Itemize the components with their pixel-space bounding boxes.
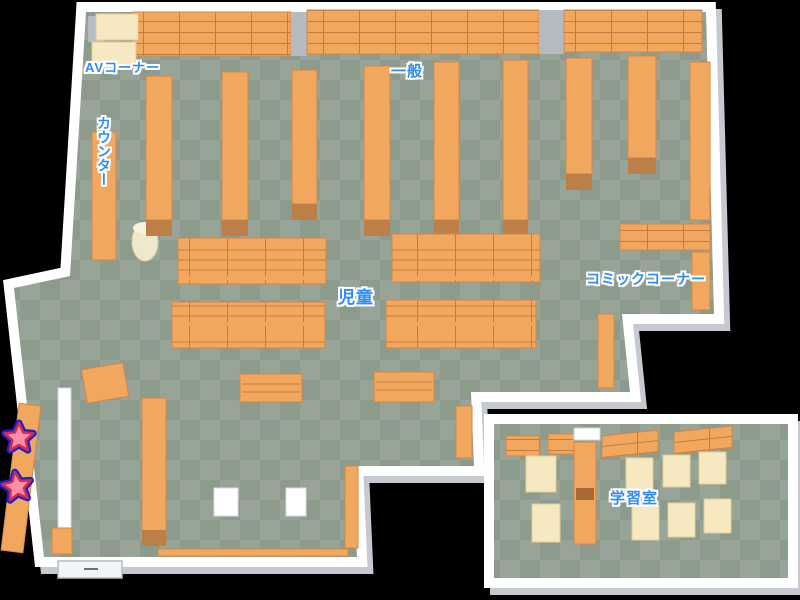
bookshelf-end bbox=[292, 204, 317, 220]
bookshelf-end bbox=[628, 158, 656, 174]
low-bookshelf bbox=[386, 300, 536, 348]
wall-bookshelf bbox=[690, 62, 710, 220]
bookshelf bbox=[548, 434, 574, 454]
study-desk bbox=[663, 455, 690, 487]
bookshelf bbox=[434, 62, 459, 220]
bookshelf bbox=[52, 528, 72, 554]
study-desk bbox=[699, 452, 726, 484]
wall-bookshelf bbox=[564, 10, 702, 52]
study-desk bbox=[626, 458, 653, 490]
label-study-room: 学習室 bbox=[610, 487, 658, 508]
bookshelf-end bbox=[222, 220, 248, 236]
wall-bookshelf bbox=[345, 466, 358, 548]
bench bbox=[374, 372, 434, 402]
bookshelf bbox=[566, 58, 592, 174]
wall-segment bbox=[574, 428, 600, 440]
return-box bbox=[214, 488, 238, 516]
bookshelf bbox=[620, 224, 710, 250]
study-desk bbox=[704, 499, 731, 533]
wall-bookshelf bbox=[598, 314, 614, 388]
bookshelf-end bbox=[146, 220, 172, 236]
wall-bookshelf bbox=[456, 406, 472, 458]
bench bbox=[240, 374, 302, 402]
top-wall-shelves bbox=[88, 10, 702, 56]
bookshelf bbox=[506, 436, 540, 456]
bookshelf-end bbox=[364, 220, 390, 236]
partition-wall bbox=[58, 388, 71, 538]
label-counter: カウンター bbox=[94, 116, 114, 186]
bookshelf bbox=[142, 398, 166, 544]
low-bookshelf bbox=[392, 234, 540, 282]
label-children: 児童 bbox=[338, 283, 374, 308]
study-desk bbox=[532, 504, 560, 542]
bookshelf bbox=[628, 56, 656, 158]
bookshelf-end bbox=[566, 174, 592, 190]
table bbox=[81, 363, 128, 404]
wall-pillar bbox=[539, 10, 564, 54]
wall-bookshelf bbox=[133, 12, 291, 56]
wall-ledge bbox=[158, 549, 348, 556]
return-box bbox=[286, 488, 306, 516]
bookshelf-end bbox=[142, 530, 166, 546]
label-general: 一般 bbox=[391, 60, 423, 81]
bookshelf bbox=[222, 72, 248, 220]
library-floor-map: AVコーナー 一般 カウンター 児童 コミックコーナー 学習室 bbox=[0, 0, 800, 600]
low-bookshelf bbox=[172, 302, 325, 348]
wall-bookshelf bbox=[307, 10, 539, 54]
av-desk bbox=[96, 14, 138, 40]
partition-gap bbox=[576, 488, 594, 500]
bookshelf bbox=[146, 76, 172, 220]
bookshelf bbox=[292, 70, 317, 204]
wall-pillar bbox=[291, 12, 307, 56]
low-bookshelf bbox=[178, 238, 326, 284]
label-av-corner: AVコーナー bbox=[85, 57, 160, 76]
label-comic-corner: コミックコーナー bbox=[586, 269, 706, 289]
floor-map-drawing bbox=[0, 0, 800, 600]
study-desk bbox=[668, 503, 695, 537]
study-desk bbox=[526, 456, 556, 492]
study-desk bbox=[632, 506, 659, 540]
bookshelf bbox=[503, 60, 528, 220]
bookshelf bbox=[364, 66, 390, 220]
